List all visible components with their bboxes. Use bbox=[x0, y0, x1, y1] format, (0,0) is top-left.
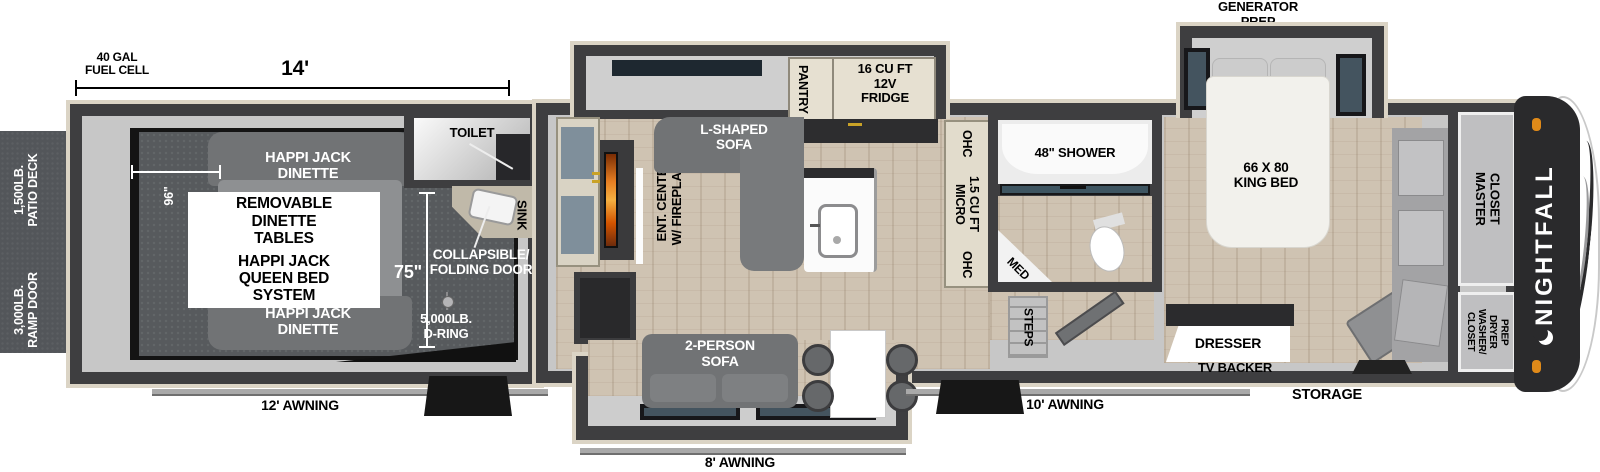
brand-crescent-icon bbox=[1538, 330, 1553, 345]
center-awning-label: 8' AWNING bbox=[660, 455, 820, 471]
king-bed-label: 66 X 80 KING BED bbox=[1216, 160, 1316, 190]
fridge-label: 16 CU FT 12V FRIDGE bbox=[836, 62, 934, 106]
island-sink bbox=[818, 204, 858, 258]
tv-screen bbox=[636, 168, 643, 264]
fireplace-flame bbox=[604, 152, 618, 248]
slide-window-left-pane bbox=[644, 408, 736, 416]
chair-3 bbox=[886, 344, 918, 376]
depth-dim-tick-b bbox=[419, 346, 435, 348]
depth-dim-tick-t bbox=[419, 192, 435, 194]
ohc-counter: OHC 1.5 CU FT MICRO OHC bbox=[944, 120, 990, 288]
rv-floorplan: 40 GAL FUEL CELL 14' 1,500LB. PATIO DECK… bbox=[0, 0, 1600, 472]
dresser-label: DRESSER bbox=[1195, 336, 1261, 352]
bedroom-window-right bbox=[1336, 54, 1366, 116]
garage-callout-box: REMOVABLE DINETTE TABLES HAPPI JACK QUEE… bbox=[188, 192, 380, 308]
island-faucet bbox=[810, 224, 820, 227]
bedroom-window-right-pane bbox=[1340, 58, 1362, 112]
rear-entry-step bbox=[424, 376, 512, 416]
wardrobe-panel-1 bbox=[1398, 140, 1444, 196]
master-closet-label: MASTER CLOSET bbox=[1472, 172, 1501, 226]
dresser: DRESSER bbox=[1166, 326, 1290, 362]
kitchen-counter bbox=[790, 119, 938, 143]
storage-label: STORAGE bbox=[1272, 387, 1382, 403]
sink-drain bbox=[833, 236, 841, 244]
master-closet: MASTER CLOSET bbox=[1458, 112, 1516, 286]
island-edge bbox=[804, 168, 874, 178]
chair-2 bbox=[802, 380, 834, 412]
brand-crescent-cutout bbox=[1533, 326, 1548, 341]
fireplace-unit bbox=[574, 272, 636, 344]
cap-marker-light-top bbox=[1532, 118, 1541, 131]
sofa-cushion-2 bbox=[722, 374, 788, 402]
washer-dryer-label: CLOSET WASHER/ DRYER PREP bbox=[1465, 309, 1510, 354]
shower-handle bbox=[1060, 186, 1086, 189]
depth-dim-label: 75" bbox=[378, 262, 422, 282]
queen-bed-label: HAPPI JACK QUEEN BED SYSTEM bbox=[238, 253, 330, 305]
washer-dryer-closet: CLOSET WASHER/ DRYER PREP bbox=[1458, 292, 1516, 372]
tv-backer-label: TV BACKER bbox=[1170, 361, 1300, 376]
fuel-cell-label: 40 GAL FUEL CELL bbox=[62, 51, 172, 78]
sink-label: SINK bbox=[514, 188, 534, 242]
dinette-front-label: HAPPI JACK DINETTE bbox=[238, 150, 378, 182]
bedroom-window-left-pane bbox=[1188, 52, 1206, 106]
chair-4 bbox=[886, 380, 918, 412]
removable-tables-label: REMOVABLE DINETTE TABLES bbox=[236, 195, 332, 247]
ohc-right-label: OHC bbox=[960, 251, 974, 278]
kitchen-slide-window bbox=[612, 60, 762, 76]
steps: STEPS bbox=[1008, 296, 1048, 358]
ohc-left-label: OHC bbox=[960, 130, 974, 157]
dim-tick-right bbox=[508, 80, 510, 96]
dinette-table bbox=[830, 330, 886, 418]
folding-door-label: COLLAPSIBLE/ FOLDING DOOR bbox=[424, 247, 538, 277]
sofa-cushion-1 bbox=[650, 374, 716, 402]
cap-marker-light-bottom bbox=[1532, 360, 1541, 373]
l-sofa-label: L-SHAPED SOFA bbox=[676, 122, 792, 152]
storage-bay-door bbox=[1352, 360, 1412, 374]
shower-label: 48" SHOWER bbox=[1010, 146, 1140, 161]
left-cabinet-glass-top bbox=[561, 127, 594, 179]
two-person-sofa-label: 2-PERSON SOFA bbox=[652, 338, 788, 369]
steps-label: STEPS bbox=[1021, 308, 1034, 346]
width-dim-label: 96" bbox=[162, 171, 182, 221]
chair-1 bbox=[802, 344, 834, 376]
d-ring-label: 5,000LB. D-RING bbox=[390, 312, 502, 341]
garage-length-label: 14' bbox=[240, 57, 350, 81]
wardrobe-panel-3 bbox=[1394, 279, 1448, 347]
front-awning-label: 10' AWNING bbox=[990, 397, 1140, 413]
d-ring-icon bbox=[442, 296, 454, 308]
width-dim-tick-l bbox=[131, 165, 133, 179]
pantry-label: PANTRY bbox=[796, 60, 826, 118]
dinette-rear-label: HAPPI JACK DINETTE bbox=[238, 306, 378, 338]
bedroom-tv bbox=[1166, 304, 1294, 326]
garage-toilet-fixture bbox=[496, 134, 530, 180]
garage-length-dim-line bbox=[76, 87, 510, 89]
toilet-label: TOILET bbox=[430, 126, 514, 141]
width-dim-tick-r bbox=[219, 165, 221, 179]
rear-awning-label: 12' AWNING bbox=[220, 398, 380, 414]
patio-deck-label: 1,500LB. PATIO DECK bbox=[12, 125, 46, 255]
pantry-divider bbox=[832, 59, 834, 119]
ramp-door-label: 3,000LB. RAMP DOOR bbox=[12, 245, 46, 375]
micro-label: 1.5 CU FT MICRO bbox=[953, 176, 981, 232]
counter-handle bbox=[848, 123, 862, 126]
left-cabinet-glass-bottom bbox=[561, 196, 594, 254]
wardrobe-panel-2 bbox=[1398, 210, 1444, 266]
dim-tick-left bbox=[75, 80, 77, 96]
